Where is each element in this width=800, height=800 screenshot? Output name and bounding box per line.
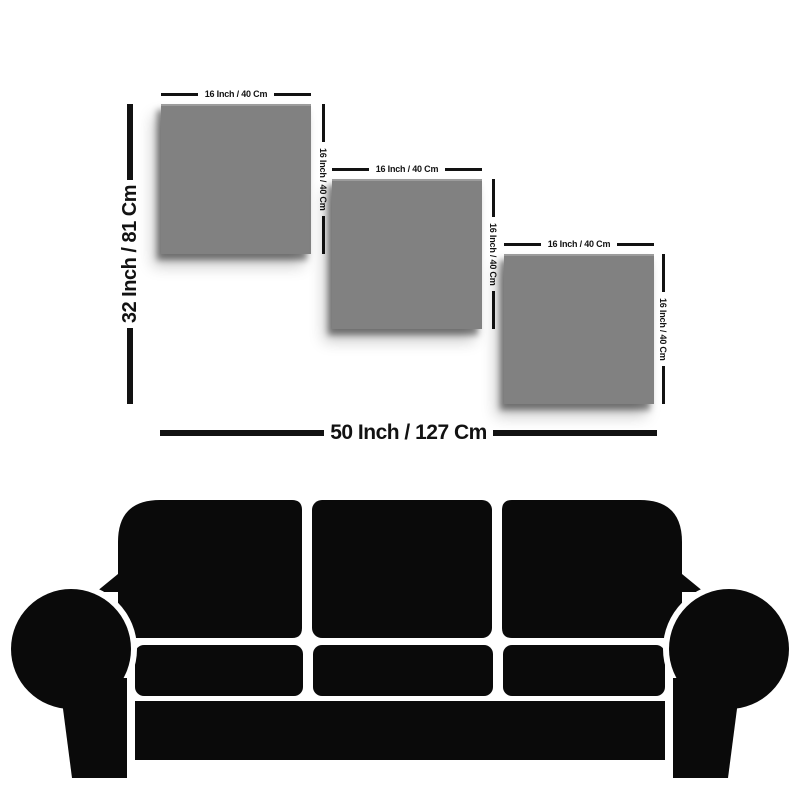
- dimension-line: [322, 216, 325, 254]
- dimension-line: [274, 93, 311, 96]
- sofa-silhouette-icon: [0, 478, 800, 800]
- overall-width-label: 50 Inch / 127 Cm: [330, 421, 487, 445]
- dimension-line: [160, 430, 324, 436]
- panel-2-height-label: 16 Inch / 40 Cm: [488, 223, 498, 286]
- sofa-base: [135, 701, 665, 760]
- dimension-line: [493, 430, 657, 436]
- panel-2-height-dimension: 16 Inch / 40 Cm: [486, 179, 500, 329]
- sofa-back-cushion: [312, 500, 492, 638]
- dimension-line: [504, 243, 541, 246]
- panel-1-width-label: 16 Inch / 40 Cm: [205, 89, 268, 99]
- dimension-line: [127, 104, 133, 180]
- panel-1-width-dimension: 16 Inch / 40 Cm: [161, 88, 311, 100]
- dimension-line: [662, 254, 665, 292]
- canvas-panel-1: [161, 104, 311, 254]
- size-guide-image: 32 Inch / 81 Cm 16 Inch / 40 Cm 16 Inch …: [0, 0, 800, 800]
- panel-2-width-label: 16 Inch / 40 Cm: [376, 164, 439, 174]
- dimension-line: [617, 243, 654, 246]
- dimension-line: [322, 104, 325, 142]
- panel-1-height-label: 16 Inch / 40 Cm: [318, 148, 328, 211]
- dimension-line: [445, 168, 482, 171]
- sofa-back-cushion: [118, 500, 302, 638]
- sofa-back-corner: [96, 574, 118, 592]
- sofa-seat-cushion: [135, 645, 303, 696]
- panel-3-width-dimension: 16 Inch / 40 Cm: [504, 238, 654, 250]
- sofa-back-cushion: [502, 500, 682, 638]
- overall-height-dimension: 32 Inch / 81 Cm: [119, 104, 141, 404]
- sofa-seat-cushion: [313, 645, 493, 696]
- panel-3-height-dimension: 16 Inch / 40 Cm: [656, 254, 670, 404]
- panel-3-width-label: 16 Inch / 40 Cm: [548, 239, 611, 249]
- canvas-panel-3: [504, 254, 654, 404]
- dimension-line: [492, 291, 495, 329]
- dimension-line: [161, 93, 198, 96]
- dimension-line: [127, 328, 133, 404]
- overall-width-dimension: 50 Inch / 127 Cm: [160, 420, 657, 446]
- panel-1-height-dimension: 16 Inch / 40 Cm: [316, 104, 330, 254]
- overall-height-label: 32 Inch / 81 Cm: [119, 185, 142, 323]
- sofa-back-corner: [682, 574, 704, 592]
- panel-3-height-label: 16 Inch / 40 Cm: [658, 298, 668, 361]
- sofa-seat-cushion: [503, 645, 665, 696]
- canvas-panel-2: [332, 179, 482, 329]
- dimension-line: [662, 366, 665, 404]
- panel-2-width-dimension: 16 Inch / 40 Cm: [332, 163, 482, 175]
- dimension-line: [492, 179, 495, 217]
- dimension-line: [332, 168, 369, 171]
